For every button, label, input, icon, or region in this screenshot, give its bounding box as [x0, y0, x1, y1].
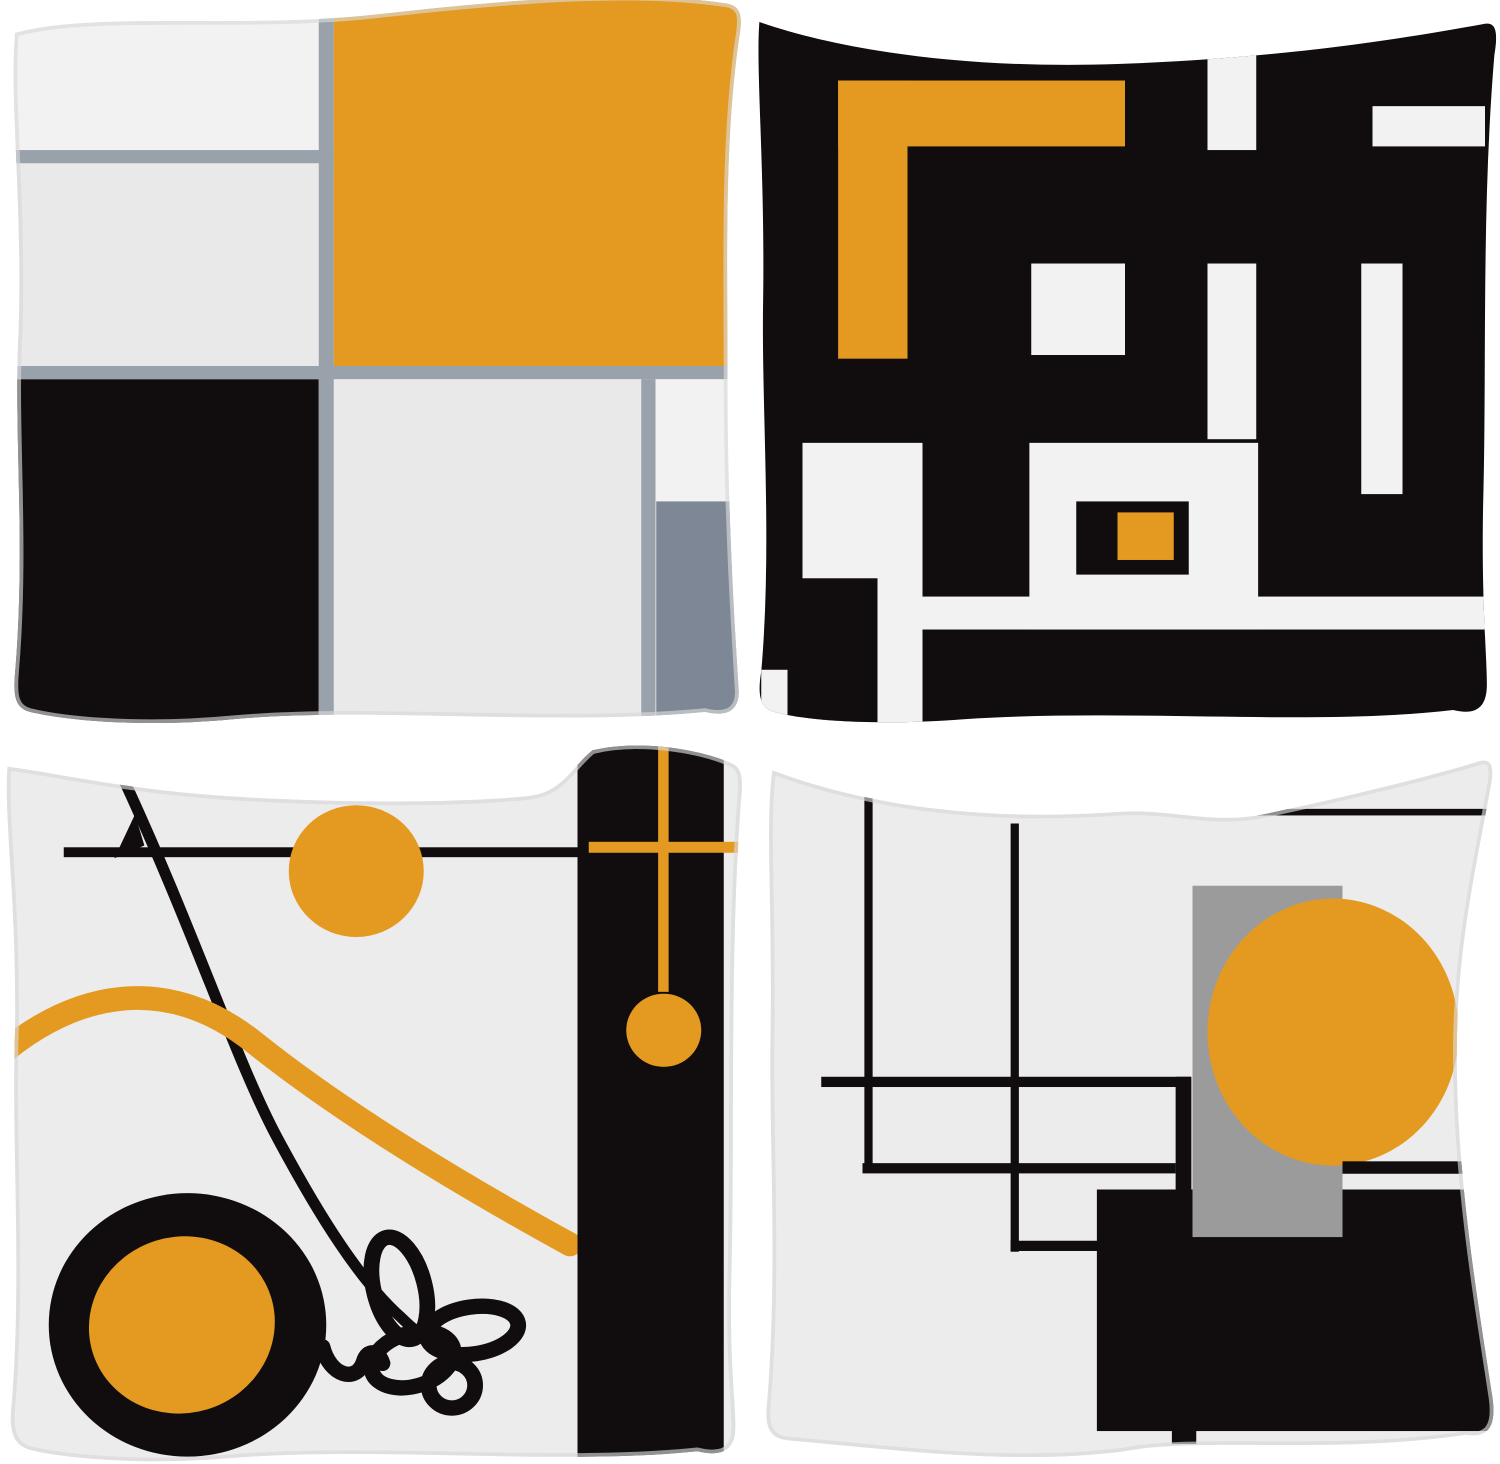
black-block — [11, 379, 319, 732]
pillow-black-maze — [750, 0, 1500, 732]
orange-crossbar — [589, 842, 739, 853]
orange-pendulum-string — [658, 739, 669, 992]
thin-line-horizontal-upper — [821, 1077, 1190, 1087]
black-rect-bottom-left — [788, 578, 878, 732]
pillow-grid-circle-art — [750, 732, 1500, 1464]
grid-line-vertical-center — [319, 0, 334, 732]
orange-pendulum-ball — [626, 994, 701, 1067]
black-foot-tab — [1172, 1426, 1196, 1444]
black-connector-bar — [1176, 1077, 1192, 1198]
white-bar-top-right — [1373, 106, 1486, 146]
thin-line-horizontal-middle — [863, 1163, 1176, 1173]
orange-sun-circle — [289, 805, 424, 937]
pillow-mondrian-grid-art — [0, 0, 750, 732]
thin-line-horizontal-right — [1343, 1161, 1500, 1173]
orange-l-vertical — [838, 81, 907, 359]
orange-block — [334, 0, 743, 368]
panel-center-light — [334, 379, 642, 732]
pillow-line-art-art — [0, 732, 750, 1464]
thin-line-vertical-center — [1011, 824, 1019, 1252]
black-side-column — [578, 732, 724, 1464]
white-bar-middle — [1208, 264, 1257, 440]
pillow-mondrian-grid — [0, 0, 750, 732]
thin-line-vertical-left — [864, 794, 872, 1173]
white-square-center — [1031, 264, 1125, 356]
pillow-grid-circle — [750, 732, 1500, 1464]
orange-circle — [1208, 899, 1459, 1166]
pillow-black-maze-art — [750, 0, 1500, 732]
white-bar-right — [1361, 264, 1402, 495]
thin-line-horizontal-step — [1011, 1241, 1105, 1251]
pillow-line-art — [0, 732, 750, 1464]
white-bar-top — [1208, 0, 1257, 150]
grid-line-vertical-right — [641, 379, 655, 732]
grid-line-horizontal-lower — [0, 366, 739, 379]
orange-small-square — [1118, 512, 1174, 560]
product-photo — [0, 0, 1500, 1464]
grid-line-horizontal-upper — [0, 150, 334, 163]
panel-left-light — [0, 163, 319, 367]
